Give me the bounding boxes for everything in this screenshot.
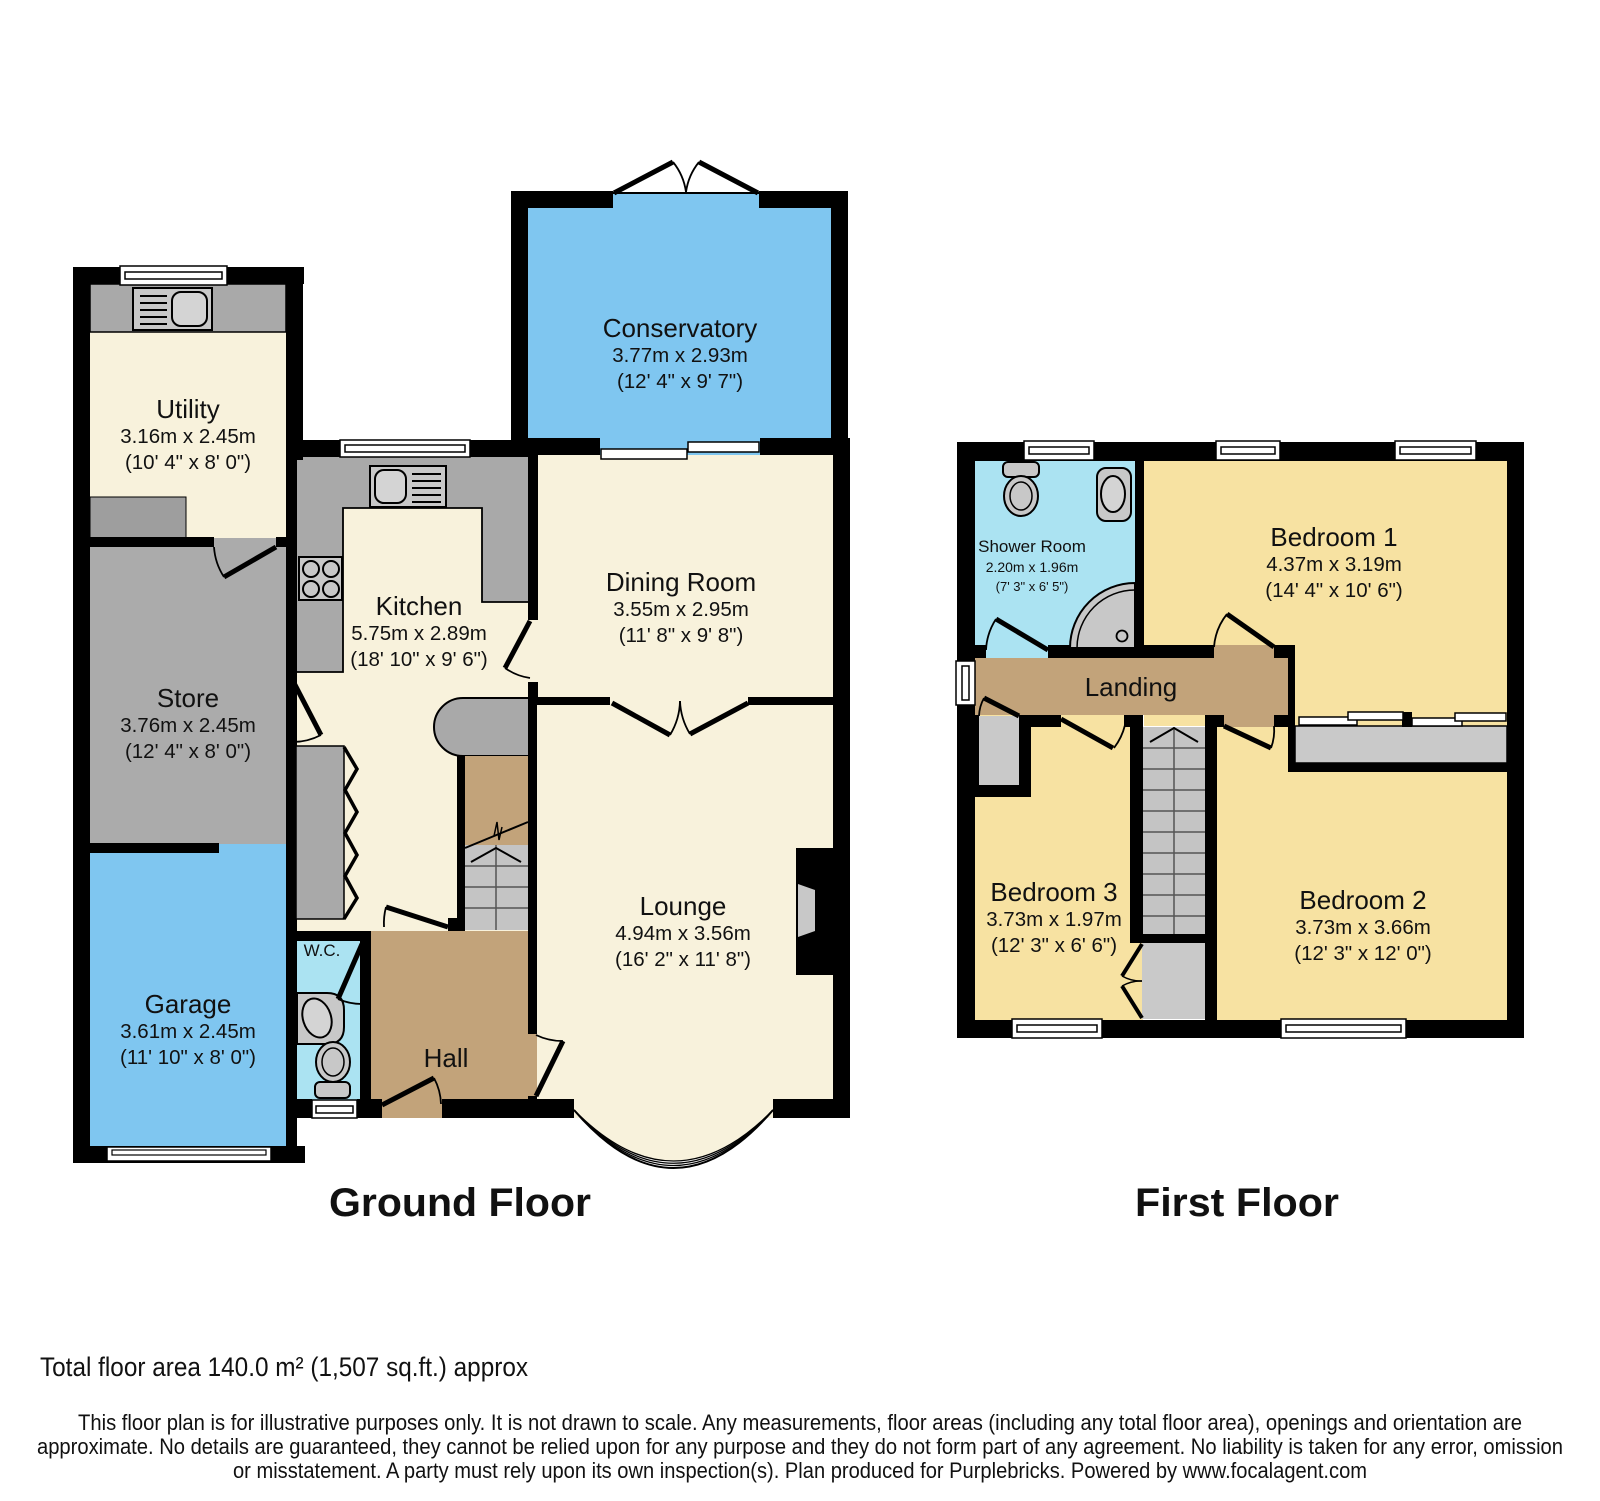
svg-text:W.C.: W.C.	[304, 941, 341, 960]
svg-text:Store: Store	[157, 683, 219, 713]
svg-text:3.73m x 1.97m: 3.73m x 1.97m	[986, 908, 1122, 931]
svg-text:3.76m x 2.45m: 3.76m x 2.45m	[120, 714, 256, 737]
svg-text:(12' 4" x 9' 7"): (12' 4" x 9' 7")	[617, 370, 743, 393]
svg-text:3.73m x 3.66m: 3.73m x 3.66m	[1295, 916, 1431, 939]
svg-text:Utility: Utility	[156, 394, 220, 424]
svg-text:2.20m x 1.96m: 2.20m x 1.96m	[986, 559, 1079, 575]
svg-text:3.55m x 2.95m: 3.55m x 2.95m	[613, 598, 749, 621]
svg-text:or misstatement. A party must: or misstatement. A party must rely upon …	[233, 1458, 1367, 1483]
svg-text:Shower Room: Shower Room	[978, 537, 1086, 556]
svg-text:Dining Room: Dining Room	[606, 567, 756, 597]
svg-text:First Floor: First Floor	[1135, 1181, 1339, 1225]
svg-text:(11' 10" x 8' 0"): (11' 10" x 8' 0")	[120, 1046, 256, 1069]
svg-text:3.77m x 2.93m: 3.77m x 2.93m	[612, 344, 748, 367]
svg-text:(11' 8" x 9' 8"): (11' 8" x 9' 8")	[619, 624, 744, 647]
svg-text:Kitchen: Kitchen	[376, 591, 463, 621]
svg-text:This floor plan is for illustr: This floor plan is for illustrative purp…	[78, 1410, 1522, 1435]
svg-text:(10' 4" x 8' 0"): (10' 4" x 8' 0")	[125, 451, 251, 474]
svg-text:(12' 3" x 12' 0"): (12' 3" x 12' 0")	[1294, 942, 1431, 965]
svg-text:3.16m x 2.45m: 3.16m x 2.45m	[120, 425, 256, 448]
svg-text:Garage: Garage	[145, 989, 232, 1019]
svg-text:(12' 4" x 8' 0"): (12' 4" x 8' 0")	[125, 740, 251, 763]
svg-text:Ground Floor: Ground Floor	[329, 1181, 591, 1225]
svg-text:(18' 10" x 9' 6"): (18' 10" x 9' 6")	[350, 648, 487, 671]
svg-text:Landing: Landing	[1085, 672, 1178, 702]
svg-text:Bedroom 3: Bedroom 3	[990, 877, 1117, 907]
svg-text:Total floor area 140.0 m² (1,5: Total floor area 140.0 m² (1,507 sq.ft.)…	[40, 1352, 528, 1382]
svg-text:Bedroom 2: Bedroom 2	[1299, 885, 1426, 915]
svg-text:5.75m x 2.89m: 5.75m x 2.89m	[351, 622, 487, 645]
svg-text:Bedroom 1: Bedroom 1	[1270, 522, 1397, 552]
svg-text:(12' 3" x 6' 6"): (12' 3" x 6' 6")	[991, 934, 1117, 957]
svg-text:approximate. No details are gu: approximate. No details are guaranteed, …	[37, 1434, 1563, 1459]
svg-text:3.61m x 2.45m: 3.61m x 2.45m	[120, 1020, 256, 1043]
svg-text:4.94m x 3.56m: 4.94m x 3.56m	[615, 922, 751, 945]
svg-text:Conservatory: Conservatory	[603, 313, 758, 343]
svg-text:(14' 4" x 10' 6"): (14' 4" x 10' 6")	[1265, 579, 1402, 602]
svg-text:Hall: Hall	[424, 1043, 469, 1073]
svg-text:Lounge: Lounge	[640, 891, 727, 921]
svg-text:(7' 3" x 6' 5"): (7' 3" x 6' 5")	[996, 579, 1069, 594]
svg-text:(16' 2" x 11' 8"): (16' 2" x 11' 8")	[615, 948, 751, 971]
svg-text:4.37m x 3.19m: 4.37m x 3.19m	[1266, 553, 1402, 576]
